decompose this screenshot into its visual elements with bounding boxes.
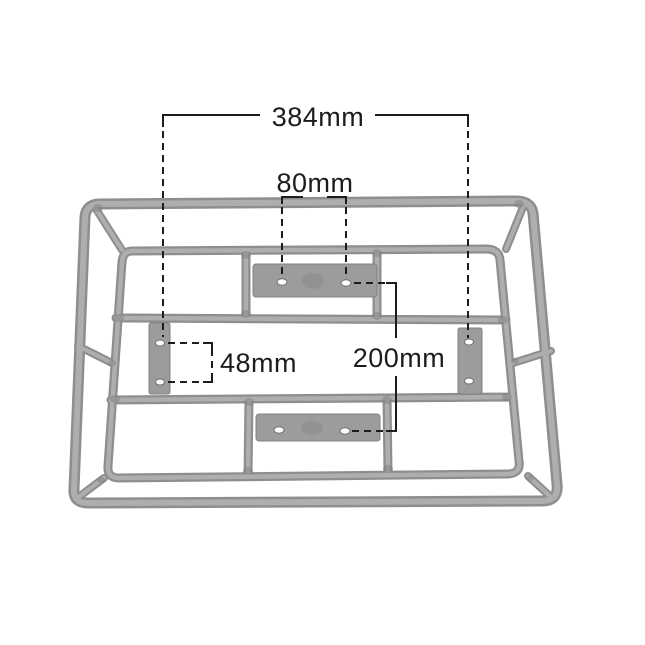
dimension-384mm: 384mm	[163, 102, 468, 338]
right-plate-top-hole	[465, 339, 474, 345]
dimension-48mm: 48mm	[168, 343, 297, 382]
rack-dimension-diagram: 384mm 80mm 48mm 200mm	[0, 0, 645, 645]
dimension-200mm: 200mm	[352, 283, 445, 431]
left-plate-top-hole	[156, 340, 165, 346]
dimension-48mm-label: 48mm	[220, 348, 297, 378]
dimension-80mm: 80mm	[276, 168, 353, 278]
rack-frame	[74, 200, 557, 503]
bottom-plate-right-hole	[340, 428, 350, 434]
bottom-plate-left-hole	[274, 427, 284, 433]
left-plate-bottom-hole	[156, 379, 165, 385]
dimension-200mm-label: 200mm	[353, 343, 446, 373]
right-plate-bottom-hole	[465, 378, 474, 384]
dimension-384mm-label: 384mm	[272, 102, 365, 132]
top-plate-left-hole	[277, 279, 287, 285]
dimension-80mm-label: 80mm	[276, 168, 353, 198]
diagram-canvas: 384mm 80mm 48mm 200mm	[0, 0, 645, 645]
top-plate-right-hole	[341, 280, 351, 286]
